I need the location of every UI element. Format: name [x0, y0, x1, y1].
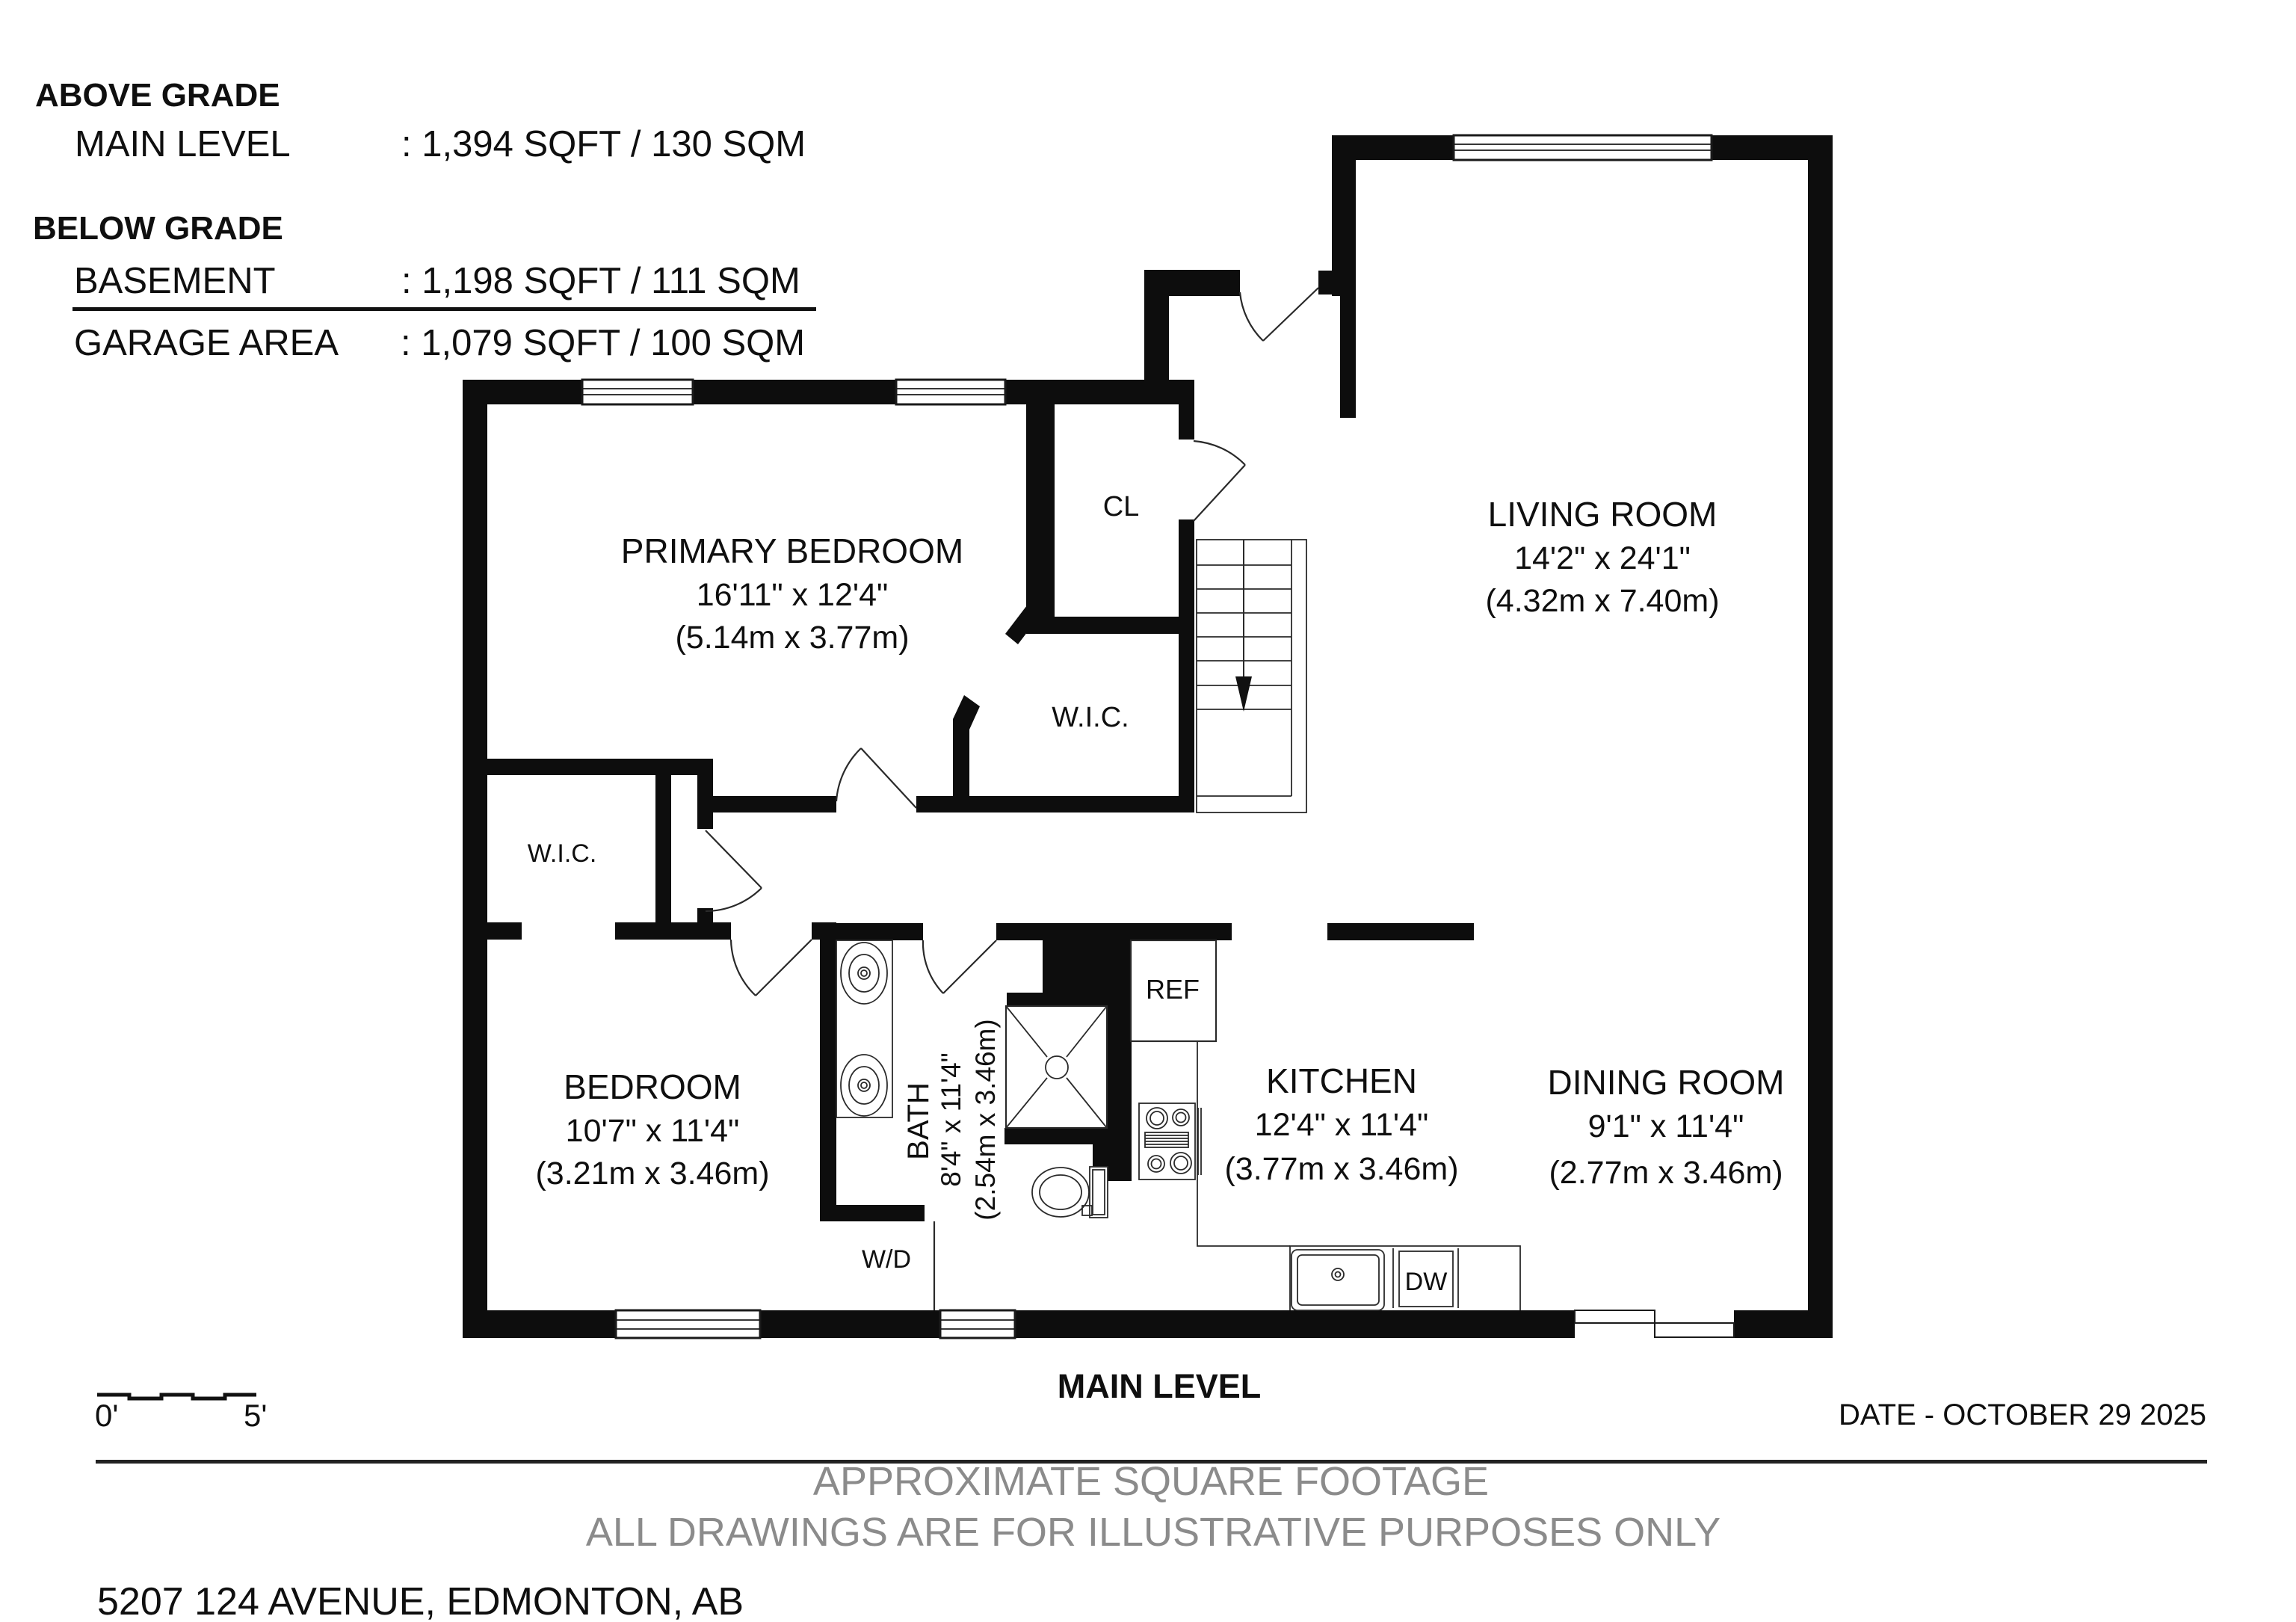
svg-text:DATE - OCTOBER 29 2025: DATE - OCTOBER 29 2025 — [1839, 1399, 2206, 1431]
svg-text:10'7" x 11'4": 10'7" x 11'4" — [566, 1113, 740, 1149]
svg-text:9'1" x 11'4": 9'1" x 11'4" — [1588, 1108, 1744, 1144]
svg-text:(5.14m x 3.77m): (5.14m x 3.77m) — [675, 620, 909, 656]
svg-text:(3.21m x 3.46m): (3.21m x 3.46m) — [535, 1156, 769, 1191]
svg-text:ABOVE GRADE: ABOVE GRADE — [35, 77, 280, 114]
svg-text:MAIN LEVEL: MAIN LEVEL — [75, 124, 291, 164]
svg-text:8'4" x 11'4": 8'4" x 11'4" — [936, 1052, 966, 1187]
svg-text:(4.32m x 7.40m): (4.32m x 7.40m) — [1485, 583, 1719, 619]
svg-text:BATH: BATH — [902, 1082, 935, 1160]
svg-text:(2.77m x 3.46m): (2.77m x 3.46m) — [1549, 1155, 1783, 1191]
svg-text:BELOW GRADE: BELOW GRADE — [33, 210, 283, 247]
svg-text:W/D: W/D — [862, 1245, 911, 1274]
svg-text:W.I.C.: W.I.C. — [528, 839, 597, 868]
svg-text:12'4" x 11'4": 12'4" x 11'4" — [1255, 1107, 1429, 1143]
svg-text:ALL DRAWINGS ARE FOR ILLUSTRAT: ALL DRAWINGS ARE FOR ILLUSTRATIVE PURPOS… — [586, 1510, 1721, 1555]
svg-text:MAIN LEVEL: MAIN LEVEL — [1058, 1367, 1262, 1405]
svg-text:W.I.C.: W.I.C. — [1052, 702, 1129, 733]
svg-text:REF: REF — [1146, 974, 1200, 1005]
svg-text:APPROXIMATE SQUARE FOOTAGE: APPROXIMATE SQUARE FOOTAGE — [813, 1459, 1489, 1504]
svg-text:BASEMENT: BASEMENT — [74, 261, 276, 301]
svg-text:LIVING ROOM: LIVING ROOM — [1488, 495, 1718, 534]
svg-text:5207 124 AVENUE, EDMONTON, AB: 5207 124 AVENUE, EDMONTON, AB — [97, 1580, 744, 1622]
svg-text:16'11" x 12'4": 16'11" x 12'4" — [697, 577, 889, 613]
svg-text:(2.54m x 3.46m): (2.54m x 3.46m) — [970, 1019, 1001, 1220]
svg-text:(3.77m x 3.46m): (3.77m x 3.46m) — [1224, 1151, 1458, 1187]
svg-text:CL: CL — [1103, 491, 1140, 522]
svg-text:: 1,394 SQFT / 130 SQM: : 1,394 SQFT / 130 SQM — [401, 124, 806, 164]
svg-text:KITCHEN: KITCHEN — [1266, 1061, 1417, 1100]
svg-text:5': 5' — [244, 1398, 267, 1433]
svg-text:BEDROOM: BEDROOM — [564, 1067, 741, 1106]
svg-text:DINING ROOM: DINING ROOM — [1548, 1063, 1785, 1102]
svg-text:PRIMARY BEDROOM: PRIMARY BEDROOM — [621, 531, 963, 570]
svg-text:: 1,198 SQFT / 111 SQM: : 1,198 SQFT / 111 SQM — [401, 261, 800, 301]
svg-text:DW: DW — [1405, 1268, 1448, 1296]
svg-text:GARAGE AREA: GARAGE AREA — [74, 323, 339, 363]
svg-text:14'2" x 24'1": 14'2" x 24'1" — [1514, 540, 1691, 576]
svg-text:: 1,079 SQFT / 100 SQM: : 1,079 SQFT / 100 SQM — [401, 323, 805, 363]
svg-text:0': 0' — [95, 1398, 118, 1433]
